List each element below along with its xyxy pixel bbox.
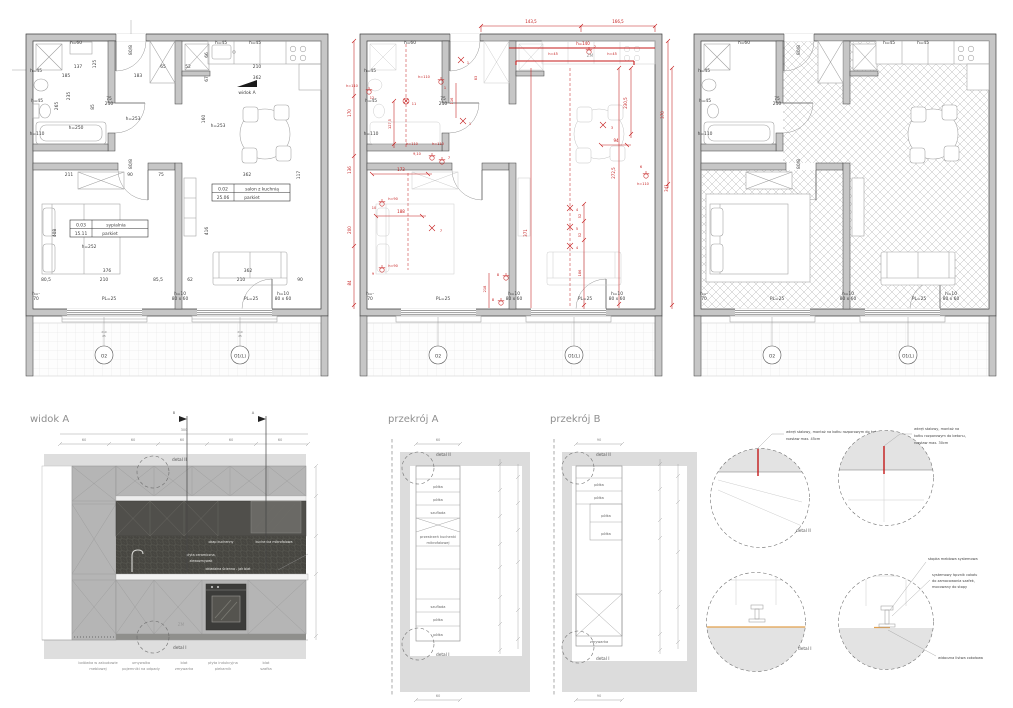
red-label: h=140 [576,41,590,46]
label: 362 [244,268,253,274]
legend-label: pojemniki na odpady [122,667,161,671]
red-label: 9,10 [413,152,421,156]
red-label: 5 [576,227,578,231]
interior-walls [33,41,210,309]
red-label: 2 [594,45,596,49]
label: 183 [134,73,143,79]
room-floor: parkiet [102,231,118,237]
detail-label: detal I [596,656,610,662]
kitchen-sink [212,45,231,59]
label: h=45 [917,40,929,46]
window-mark-label: O2 [101,354,107,360]
label: h=250 [69,125,84,131]
label: 70 [367,296,373,302]
label: h=45 [365,98,377,104]
label: 265 [54,102,60,111]
label: 80 x 60 [840,296,857,302]
pantry-column [72,466,116,640]
label: h=45 [699,98,711,104]
chair [274,105,289,120]
cell-label: przestrzeń kuchenki [420,535,456,539]
label: PL=25 [578,296,593,302]
label: 211 [65,172,74,178]
cell-label: półka [594,496,604,500]
red-label: 272,5 [611,167,616,179]
detail-label: detal II [172,457,187,463]
note: rozstaw max. 45cm [786,437,821,441]
red-label: 116 [450,98,454,105]
label: 70 [701,296,707,302]
red-label: 341 [664,184,669,192]
red-label: 188 [397,209,405,214]
label: 80 x 60 [172,296,189,302]
plinth [116,634,306,640]
dim-label: 60 [436,438,441,442]
label: h=45 [215,40,227,46]
note: widoczna listwa cokołowa [938,656,983,660]
red-label: h=110 [432,142,444,146]
room-table-salon: 0.02 salon z kuchnią 25.06 parkiet [212,184,290,201]
label: 210 [439,101,448,107]
red-label: 8 [492,298,494,302]
red-label: 143,5 [525,19,537,24]
splash-label: okładzina ścienna - jak blat [206,567,252,571]
red-label: 166,5 [612,19,624,24]
upper-cabinets [116,466,306,501]
doors [115,20,272,309]
label: 117 [296,171,302,180]
dim-label: 60 [278,438,283,442]
fridge [299,64,321,90]
label: 67 [204,76,210,82]
label: 80/8 [796,159,802,169]
label: 62 [187,277,193,283]
fridge-front [42,466,72,640]
tall-cabinet-section: półka półka szuflada przestrzeń kuchenki… [416,466,460,641]
cell-label: półka [594,483,604,487]
window-mark-label: O2 [769,354,775,360]
splash-label: zlewozmywak [190,559,213,563]
red-label: h=45 [548,52,558,56]
label: h=60 [738,40,750,46]
label: h=110 [30,131,45,137]
label: 376 [103,268,112,274]
label: 90 [297,277,303,283]
red-label: 7 [448,156,450,160]
room-name: salon z kuchnią [245,187,279,193]
oven-window [212,596,240,622]
ceiling-light-icon [403,98,409,104]
red-label: 230,5 [623,97,628,109]
label: 80,5 [41,277,51,283]
toilet-tank [33,104,39,118]
label: h=60 [404,40,416,46]
dim-label: 60 [229,438,234,442]
terrace [694,316,996,376]
room-number: 0.02 [218,187,228,193]
widok-a-arrow [237,80,257,87]
dim-label: 60 [82,438,87,442]
leveling-foot-icon [879,606,895,627]
detail-label: detal I [436,652,450,658]
red-label: h=90 [388,197,398,201]
label: 25 [102,334,106,338]
red-label: 94 [613,138,619,143]
cell-label: półka [433,633,443,637]
window-mark-label: O2 [435,354,441,360]
red-label: 1 [469,122,471,126]
toilet [40,104,51,118]
room-table-sypialnia: 0.03 sypialnia 15.11 parkiet [70,220,148,237]
red-label: 1 [467,61,469,65]
label: 160 [201,115,207,124]
label: h=45 [698,68,710,74]
kitchen-elevation-widok-a: widok A 300 60 60 60 60 60 okap kuchenny… [16,404,336,704]
label: 85,5 [153,277,163,283]
label: 210 [773,101,782,107]
label: h=252 [82,244,97,250]
note: wkręt stalowy, montaż na [914,427,959,431]
detail-label: detal II [436,452,451,458]
tv-cabinet [184,178,196,236]
section-label: B [173,411,176,415]
label: 416 [204,227,210,236]
cell-label: półka [601,532,611,536]
detal-ii-circle-30: wkręt stalowy, montaż na kołku rozporowy… [838,427,966,526]
cell-label: szuflada [431,511,446,515]
dishwasher-label: ZM [178,622,185,627]
legend-label: umywalka [132,661,150,665]
label: 80/8 [128,45,134,55]
red-label: 4 [576,246,579,250]
detal-i-circle-right: stopka meblowa systemowa systemowy łączn… [838,557,983,672]
red-label: 218 [483,286,487,293]
label: 362 [243,172,252,178]
bathroom-sink [34,79,48,91]
cell-label: szuflada [431,605,446,609]
floorplan-furniture: h=60 137 185 125 80/8 183 65 52 66 h=45 … [12,8,342,380]
label: 185 [62,73,71,79]
red-label: 10 [372,206,376,210]
chair [243,107,258,122]
label: h=253 [126,116,141,122]
note: do zamocowania szafek, [932,579,975,583]
hob [290,46,296,52]
label: 52 [185,64,191,70]
red-label: 8 [497,273,499,277]
section-label: A [252,411,255,415]
red-label: 136 [347,166,352,174]
detail-label: detal I [798,646,812,652]
room-area: 25.06 [217,195,230,201]
red-label: 371 [523,229,528,237]
label: 125 [92,60,98,69]
label: 80 x 60 [506,296,523,302]
label: h=45 [31,98,43,104]
red-label: 6 [640,165,642,169]
label: h=60 [70,40,82,46]
terrace [26,316,328,376]
label: PL=25 [102,296,117,302]
label: ZM [587,53,594,58]
room-name: sypialnia [106,223,126,229]
legend-label: zmywarka [175,667,193,671]
red-label: 7 [440,229,442,233]
red-label: 52 [578,214,582,218]
section-przekroj-b: przekrój B półka półka półka półka zmywa… [542,404,702,704]
legend-label: płyta indukcyjna [208,661,238,665]
label: 70 [33,296,39,302]
cabinet-section: półka półka półka półka zmywarka [576,466,622,646]
cell-label: półka [433,618,443,622]
cell-label: półka [433,498,443,502]
red-label: h=110 [418,75,430,79]
drawing-sheet: h=60 137 185 125 80/8 183 65 52 66 h=45 … [0,0,1013,708]
label: h=110 [698,131,713,137]
legend-label: piekarnik [215,667,232,671]
room-area: 15.11 [75,231,88,237]
red-label: h=90 [388,264,398,268]
label: PL=25 [912,296,927,302]
section-arrow-icon [179,416,187,422]
note: rozstaw max. 30cm [914,441,949,445]
socket-icon [366,47,649,305]
label: 137 [74,64,83,70]
label: PL=25 [770,296,785,302]
red-label: h=110 [406,142,418,146]
label: 210 [100,277,109,283]
room-number: 0.03 [76,223,86,229]
details-panel: wkręt stalowy, montaż na kołku rozporowy… [698,410,1013,705]
label: 408 [52,229,58,238]
window-mark-label: O1(L) [568,354,580,360]
red-label: 1 [444,86,446,90]
label: PL=25 [244,296,259,302]
red-label: 200 [347,226,352,234]
red-label: 52 [578,233,582,237]
label: 25 [238,334,242,338]
dimension-chain: 300 60 60 60 60 60 [58,428,310,446]
label: 362 [253,75,262,81]
red-label: 170 [347,109,352,117]
leveling-foot-icon [749,605,765,622]
floorplan-electrical: 143,5 166,5 h=140 h=45 2 h=45 230,5 370 … [346,8,676,380]
dark-upper-row [116,501,306,536]
legend-label: lodówka w zabudowie [78,661,118,665]
countertop [116,574,308,580]
red-label: 4 [576,208,579,212]
legend-label: meblowej [89,667,106,671]
red-label: 83 [474,76,478,80]
dim-label: 90 [597,694,602,698]
label: 80/8 [796,45,802,55]
cell-label: mikrofalowej [427,541,450,545]
note: kołku rozporowym do betonu, [914,434,966,438]
legend-label: blat [181,661,188,665]
note: mocowany do stopy [932,585,967,589]
cell-label: półka [601,514,611,518]
window-mark-label: O1(L) [902,354,914,360]
cell-label: półka [433,485,443,489]
label: h=45 [30,68,42,74]
label: 66 [204,52,210,58]
red-label: 3 [611,126,613,130]
red-label: 84 [347,280,352,286]
section-arrow-icon [258,416,266,422]
pillow [43,244,55,272]
label: 235 [66,92,72,101]
dim-label: 60 [180,438,185,442]
splash-label: płyta ceramiczna, [186,553,215,557]
bed [42,204,120,274]
label: h=253 [211,123,226,129]
interior-walls [367,41,544,309]
label: 65 [160,64,166,70]
view-label: widok A [238,90,255,96]
label: 80 x 60 [609,296,626,302]
legend: lodówka w zabudowie meblowej umywalka po… [78,661,271,671]
detail-label: detal II [796,528,811,534]
label: h=45 [364,68,376,74]
label: h=45 [249,40,261,46]
note: systemowy łącznik cokołu [932,573,977,577]
hood-label: okap kuchenny [209,540,234,544]
legend-label: blat [263,661,270,665]
label: 80 x 60 [275,296,292,302]
label: h=45 [883,40,895,46]
section-przekroj-a: przekrój A półka półka szuflada przestrz… [380,404,540,704]
label: 210 [237,277,246,283]
label: 75 [158,172,164,178]
dim-label: 60 [131,438,136,442]
microwave-label: kuchenka mikrofalowa [255,540,292,544]
label: h=110 [364,131,379,137]
legend-label: szafka [260,667,271,671]
detail-label: detal II [596,452,611,458]
dim-label: 90 [597,438,602,442]
label: 210 [105,101,114,107]
red-label: 173 [397,167,405,172]
chair [276,146,291,161]
detail-label: detal I [173,645,187,651]
tall-units [42,466,116,640]
section-title: przekrój B [550,413,601,425]
red-label: 186 [578,270,582,277]
label: PL=25 [436,296,451,302]
floorplan-flooring: h=60 h=45 h=45 h=110 75 210 h=45 h=45 h=… [680,8,1010,380]
red-label: h=110 [637,182,649,186]
red-label: 9 [372,272,374,276]
label: 210 [253,64,262,70]
backsplash: okap kuchenny kuchenka mikrofalowa płyta… [116,536,308,574]
label: 90 [127,172,133,178]
label: 80/8 [128,159,134,169]
chair [242,148,257,163]
detal-i-circle-left: detal I [706,573,812,674]
label: 85 [90,104,96,110]
terrace [360,316,662,376]
red-label: 11 [412,102,416,106]
red-label: 127,5 [388,119,392,129]
section-title: przekrój A [388,413,439,425]
red-label: h=110 [346,84,358,88]
note: stopka meblowa systemowa [928,557,978,561]
view-title: widok A [30,414,69,425]
label: 80 x 60 [943,296,960,302]
dim-label: 60 [436,694,441,698]
red-label: 370 [660,111,665,119]
room-floor: parkiet [244,195,260,201]
red-label: h=45 [607,52,617,56]
window-mark-label: O1(L) [234,354,246,360]
